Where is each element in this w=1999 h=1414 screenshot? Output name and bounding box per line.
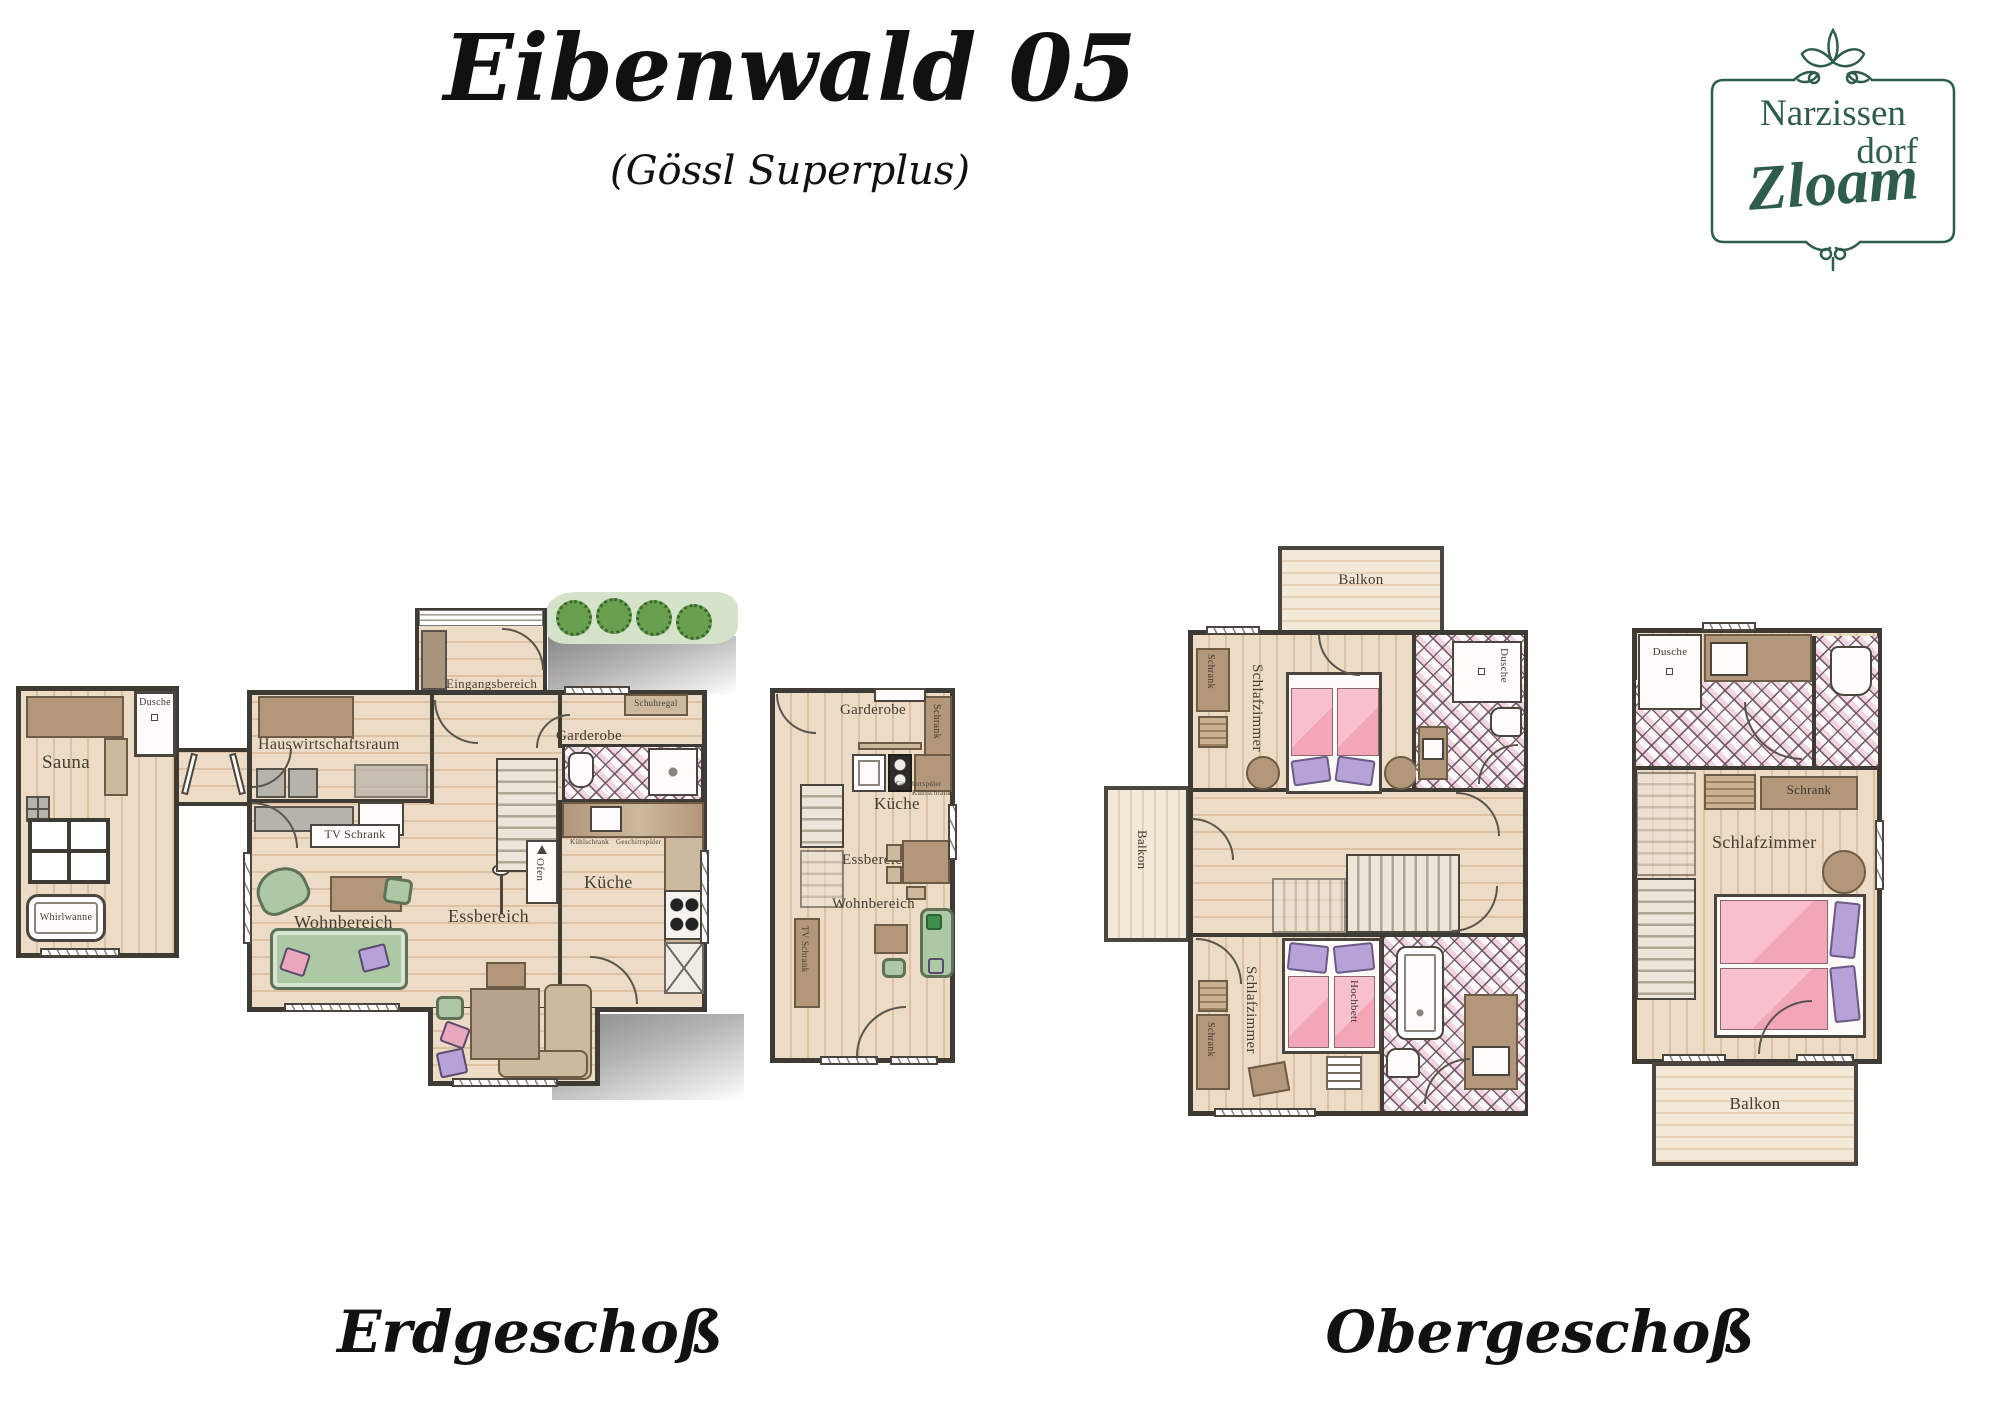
room-label-essbereich: Essbereich (448, 906, 529, 927)
loft-bed-ladder (1326, 1056, 1362, 1090)
bedside-stool (1246, 756, 1280, 790)
window (452, 1078, 558, 1087)
dining-chair (486, 962, 526, 988)
bedside-stool (1384, 756, 1418, 790)
mattress (1291, 688, 1333, 756)
dining-table-2 (902, 840, 950, 884)
room-label-schlafzimmer-3: Schlafzimmer (1712, 832, 1817, 853)
label-geschirrspueler: Geschirrspüler (616, 838, 661, 846)
cushion-green (926, 914, 942, 930)
floorplan-canvas: Eibenwald 05 (Gössl Superplus) Narzissen… (0, 0, 1999, 1414)
label-tv-schrank: TV Schrank (310, 827, 400, 842)
kitchen-sink (590, 806, 622, 832)
coffee-table-2 (874, 924, 908, 954)
pillow (1290, 755, 1331, 786)
window (1702, 622, 1756, 631)
label-kuehlschrank: Kühlschrank (570, 838, 609, 846)
toilet (568, 752, 594, 788)
pillow (1287, 942, 1330, 974)
sink-u2 (1472, 1046, 1510, 1076)
dryer (288, 768, 318, 798)
room-label-wohnbereich-2: Wohnbereich (832, 896, 915, 913)
coat-rack (858, 742, 922, 750)
utility-counter (354, 764, 428, 798)
annex-window-grid (28, 818, 110, 884)
chair (886, 844, 902, 862)
label-hochbett: Hochbett (1348, 980, 1360, 1023)
stool-green (382, 876, 413, 906)
balcony-top (1278, 546, 1444, 634)
caption-ground-floor: Erdgeschoß (250, 1298, 810, 1366)
label-geschirrspueler-2: Geschirrspüler (896, 780, 941, 788)
bush-icon (676, 604, 712, 640)
shower-tray (648, 748, 698, 796)
label-schrank-u3: Schrank (1760, 782, 1858, 798)
window (700, 850, 709, 944)
stool-green (436, 996, 464, 1020)
wall-cabinet (874, 688, 926, 702)
room-label-balkon-left: Balkon (1134, 830, 1150, 869)
flame-icon (537, 845, 547, 854)
kitchen-counter-top (562, 802, 704, 838)
wall (1812, 636, 1816, 766)
room-label-schlafzimmer-2: Schlafzimmer (1242, 966, 1259, 1054)
page-subtitle: (Gössl Superplus) (380, 148, 1200, 194)
sink-u1 (1422, 738, 1444, 760)
sauna-bench-side (104, 738, 128, 796)
stove (664, 890, 704, 940)
cushion-purple (928, 958, 944, 974)
label-schrank: Schrank (931, 704, 942, 739)
label-dusche-u1: Dusche (1498, 648, 1510, 683)
toilet-u1 (1490, 707, 1522, 737)
shower-drain-icon (1478, 668, 1485, 675)
label-dusche-u3: Dusche (1638, 646, 1702, 658)
dining-table (470, 988, 540, 1060)
stool-green-2 (882, 958, 906, 978)
room-label-dusche-annex: Dusche (134, 697, 176, 708)
window (243, 852, 252, 944)
window (820, 1056, 878, 1065)
kitchen-cabinet-x (664, 942, 704, 994)
pillow (1334, 755, 1375, 786)
label-ofen: Ofen (534, 858, 546, 881)
room-label-kueche-2: Küche (874, 794, 920, 814)
shower-drain-icon (151, 714, 158, 721)
wall (1636, 766, 1878, 770)
dresser-2 (1198, 980, 1228, 1012)
mattress (1288, 976, 1329, 1048)
room-label-eingangsbereich: Eingangsbereich (446, 676, 537, 692)
room-label-whirlwanne: Whirlwanne (26, 912, 106, 923)
room-label-schlafzimmer-1: Schlafzimmer (1248, 664, 1265, 752)
staircase-u3-lower (1636, 878, 1696, 1000)
room-label-balkon-bottom: Balkon (1652, 1094, 1858, 1114)
mattress (1720, 900, 1828, 964)
stool-u3 (1822, 850, 1866, 894)
sauna-bench (26, 696, 124, 738)
stair-landing (1272, 878, 1346, 933)
bush-icon (556, 600, 592, 636)
caption-upper-floor: Obergeschoß (1310, 1298, 1770, 1366)
wall (251, 799, 433, 803)
pillow (1333, 942, 1376, 974)
window (948, 804, 957, 860)
sink-u3 (1710, 642, 1748, 676)
bathtub (1396, 946, 1444, 1040)
window (890, 1056, 938, 1065)
dresser-1 (1198, 716, 1228, 748)
mattress (1337, 688, 1379, 756)
dresser-u3 (1704, 774, 1756, 810)
staircase-u3-upper (1636, 772, 1696, 876)
window (40, 948, 120, 957)
window (1214, 1108, 1316, 1117)
room-label-kueche: Küche (584, 872, 632, 893)
room-label-garderobe-2: Garderobe (840, 702, 906, 719)
room-label-wohnbereich: Wohnbereich (294, 912, 393, 933)
window (284, 1003, 400, 1012)
label-tv-schrank-2: TV Schrank (800, 926, 810, 973)
utility-bench (258, 696, 354, 738)
window (1206, 626, 1260, 635)
bush-icon (636, 600, 672, 636)
logo-line1: Narzissen (1702, 92, 1964, 135)
bush-icon (596, 598, 632, 634)
window (564, 686, 630, 695)
chair (886, 866, 902, 884)
page-title: Eibenwald 05 (380, 18, 1200, 119)
shower-drain-icon (1666, 668, 1673, 675)
label-schrank-b1: Schrank (1205, 654, 1216, 689)
room-label-balkon-top: Balkon (1278, 572, 1444, 589)
staircase-upper (1346, 854, 1460, 933)
label-schuhregal: Schuhregal (624, 698, 688, 708)
room-label-sauna: Sauna (42, 752, 90, 774)
staircase-2 (800, 784, 844, 848)
shower-u1 (1452, 641, 1522, 703)
brand-logo: Narzissen dorf Zloam (1702, 18, 1964, 274)
balcony-bottom (1652, 1062, 1858, 1166)
wall (430, 690, 434, 804)
porch-wardrobe (421, 630, 447, 690)
kitchenette-sink (852, 754, 886, 792)
toilet-u3 (1830, 646, 1872, 696)
window (1875, 820, 1884, 890)
toilet-u2 (1386, 1048, 1420, 1078)
porch-steps (419, 610, 543, 626)
label-schrank-b2: Schrank (1205, 1022, 1216, 1057)
